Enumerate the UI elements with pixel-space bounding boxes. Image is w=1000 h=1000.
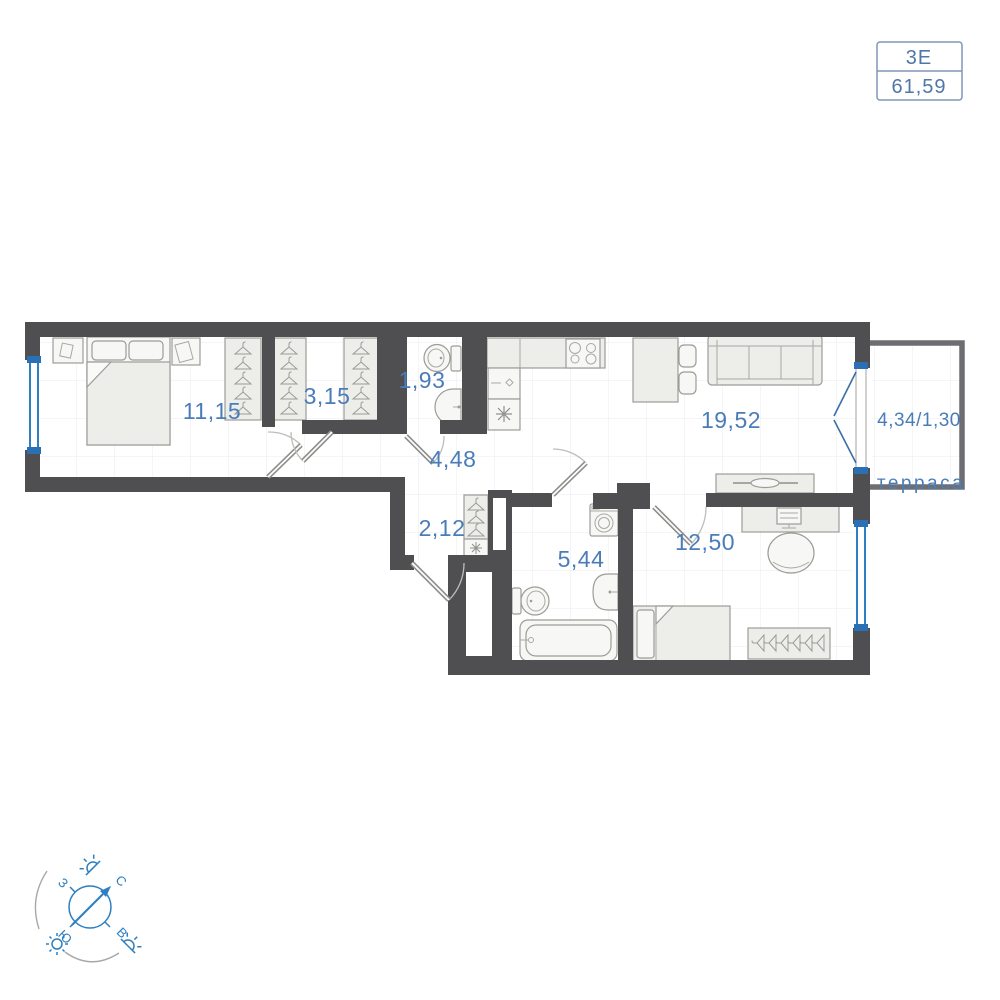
sunrise-icon — [77, 852, 100, 875]
wardrobe-rack-corridor-icon — [464, 495, 488, 539]
toilet-icon — [512, 587, 549, 615]
badge-plan-code: 3Е — [906, 47, 932, 69]
dresser-rack-icon — [748, 628, 830, 659]
floor-plan-svg: 11,15 3,15 1,93 4,48 19,52 2,12 5,44 12,… — [0, 0, 1000, 1000]
desk-icon — [742, 504, 839, 532]
nightstand-left-icon — [53, 338, 83, 363]
wardrobe-rack-left-icon — [272, 338, 306, 420]
label-wardrobe-area: 3,15 — [304, 383, 351, 409]
label-hallway-area: 4,48 — [430, 446, 477, 472]
single-bed-icon — [633, 606, 730, 662]
badge-total-area: 61,59 — [891, 76, 946, 98]
tv-stand-icon — [716, 474, 814, 493]
label-bedroom2-area: 12,50 — [675, 529, 735, 555]
label-terrace-area: 4,34/1,30 — [877, 410, 961, 431]
compass-north: С — [113, 872, 130, 889]
nightstand-right-icon — [172, 338, 200, 365]
window-bedroom-icon — [27, 356, 41, 454]
window-bedroom2-icon — [854, 520, 868, 631]
shaft-niche — [493, 498, 506, 550]
office-chair-icon — [768, 533, 814, 573]
sofa-icon — [708, 335, 822, 385]
label-terrace-name: терраса — [877, 473, 965, 494]
kitchen-sink-icon — [488, 368, 520, 399]
label-bathroom-area: 5,44 — [558, 546, 605, 572]
washbasin-icon — [593, 574, 618, 610]
fridge-icon — [488, 399, 520, 430]
sun-path-arc-bottom — [65, 952, 119, 962]
label-bathroom-small-area: 1,93 — [399, 367, 446, 393]
area-badge: 3Е 61,59 — [877, 42, 962, 100]
compass-west: З — [55, 875, 71, 891]
label-kitchen-living-area: 19,52 — [701, 407, 761, 433]
sun-path-arc-left — [35, 871, 47, 929]
compass: С В Ю З — [35, 852, 144, 962]
label-bedroom-area: 11,15 — [183, 398, 241, 424]
shaft-niche-2 — [466, 572, 492, 656]
north-arrow-icon — [72, 886, 111, 925]
label-corridor-area: 2,12 — [419, 515, 466, 541]
stove-icon — [566, 339, 600, 368]
double-bed-icon — [87, 337, 170, 445]
bathtub-icon — [520, 620, 617, 661]
